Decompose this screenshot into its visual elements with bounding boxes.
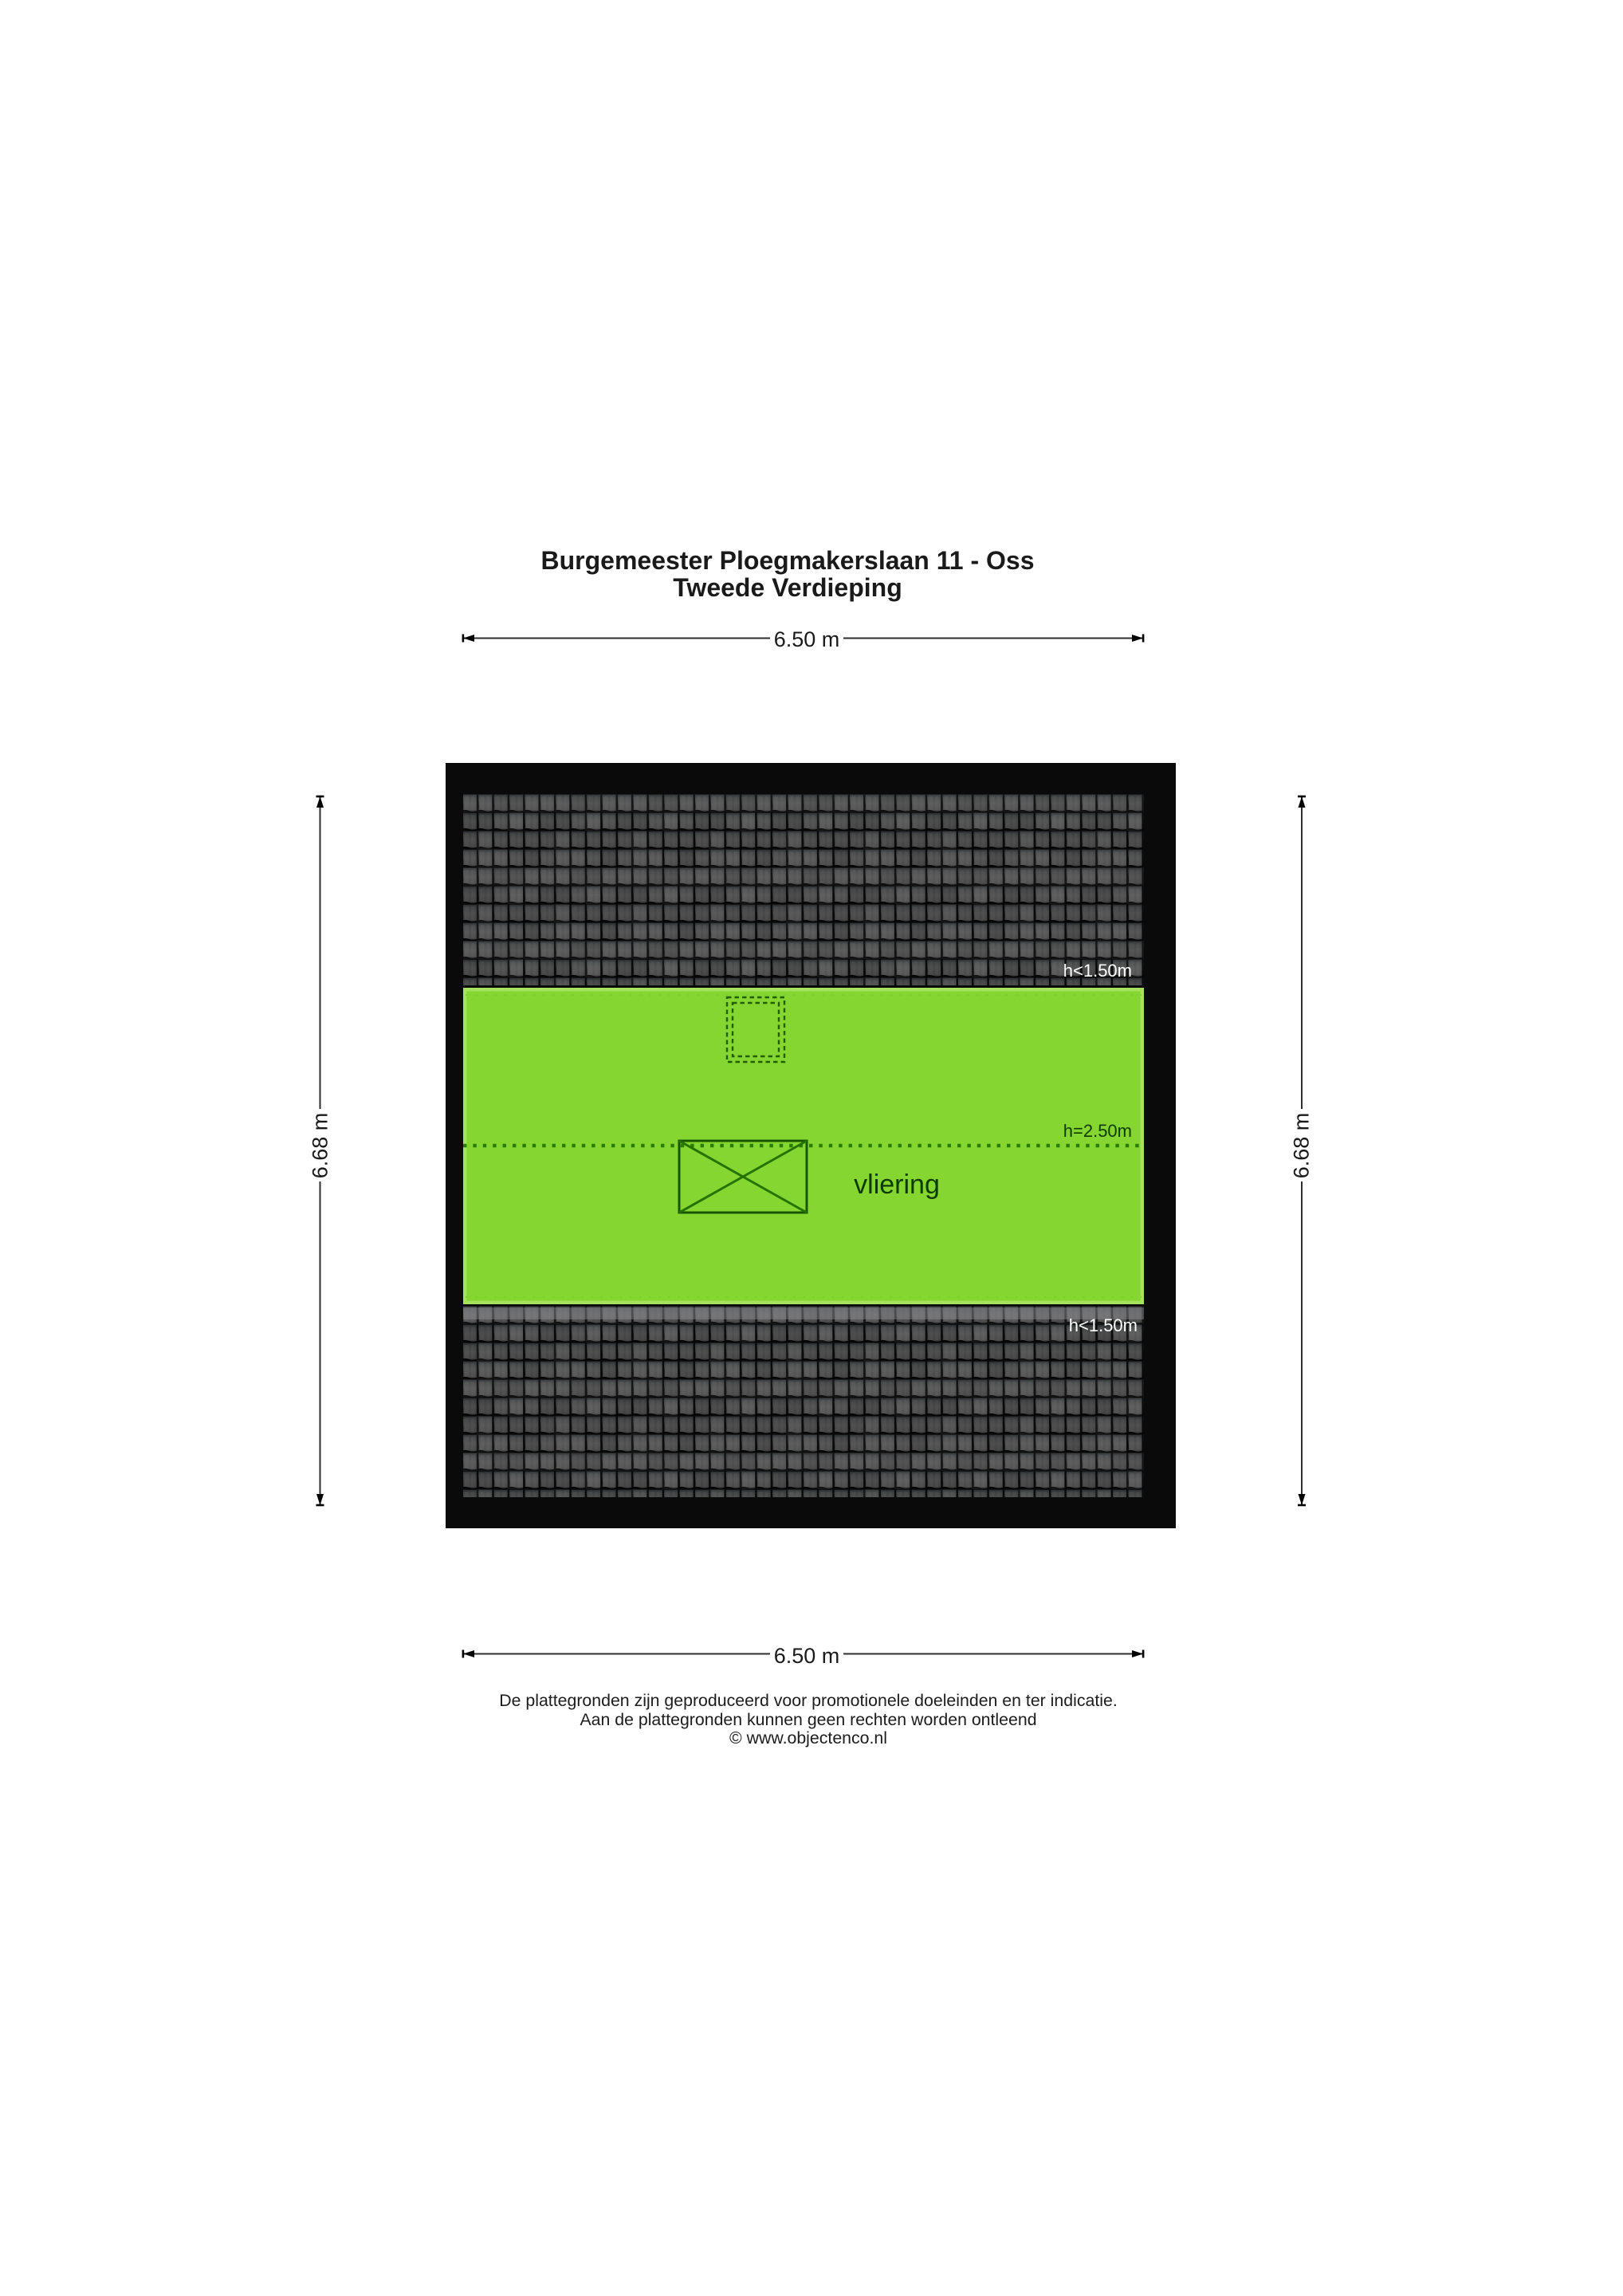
- svg-text:vliering: vliering: [854, 1170, 940, 1200]
- svg-text:h<1.50m: h<1.50m: [1063, 961, 1132, 981]
- svg-text:h<1.50m: h<1.50m: [1069, 1315, 1138, 1335]
- svg-text:h=2.50m: h=2.50m: [1063, 1121, 1132, 1141]
